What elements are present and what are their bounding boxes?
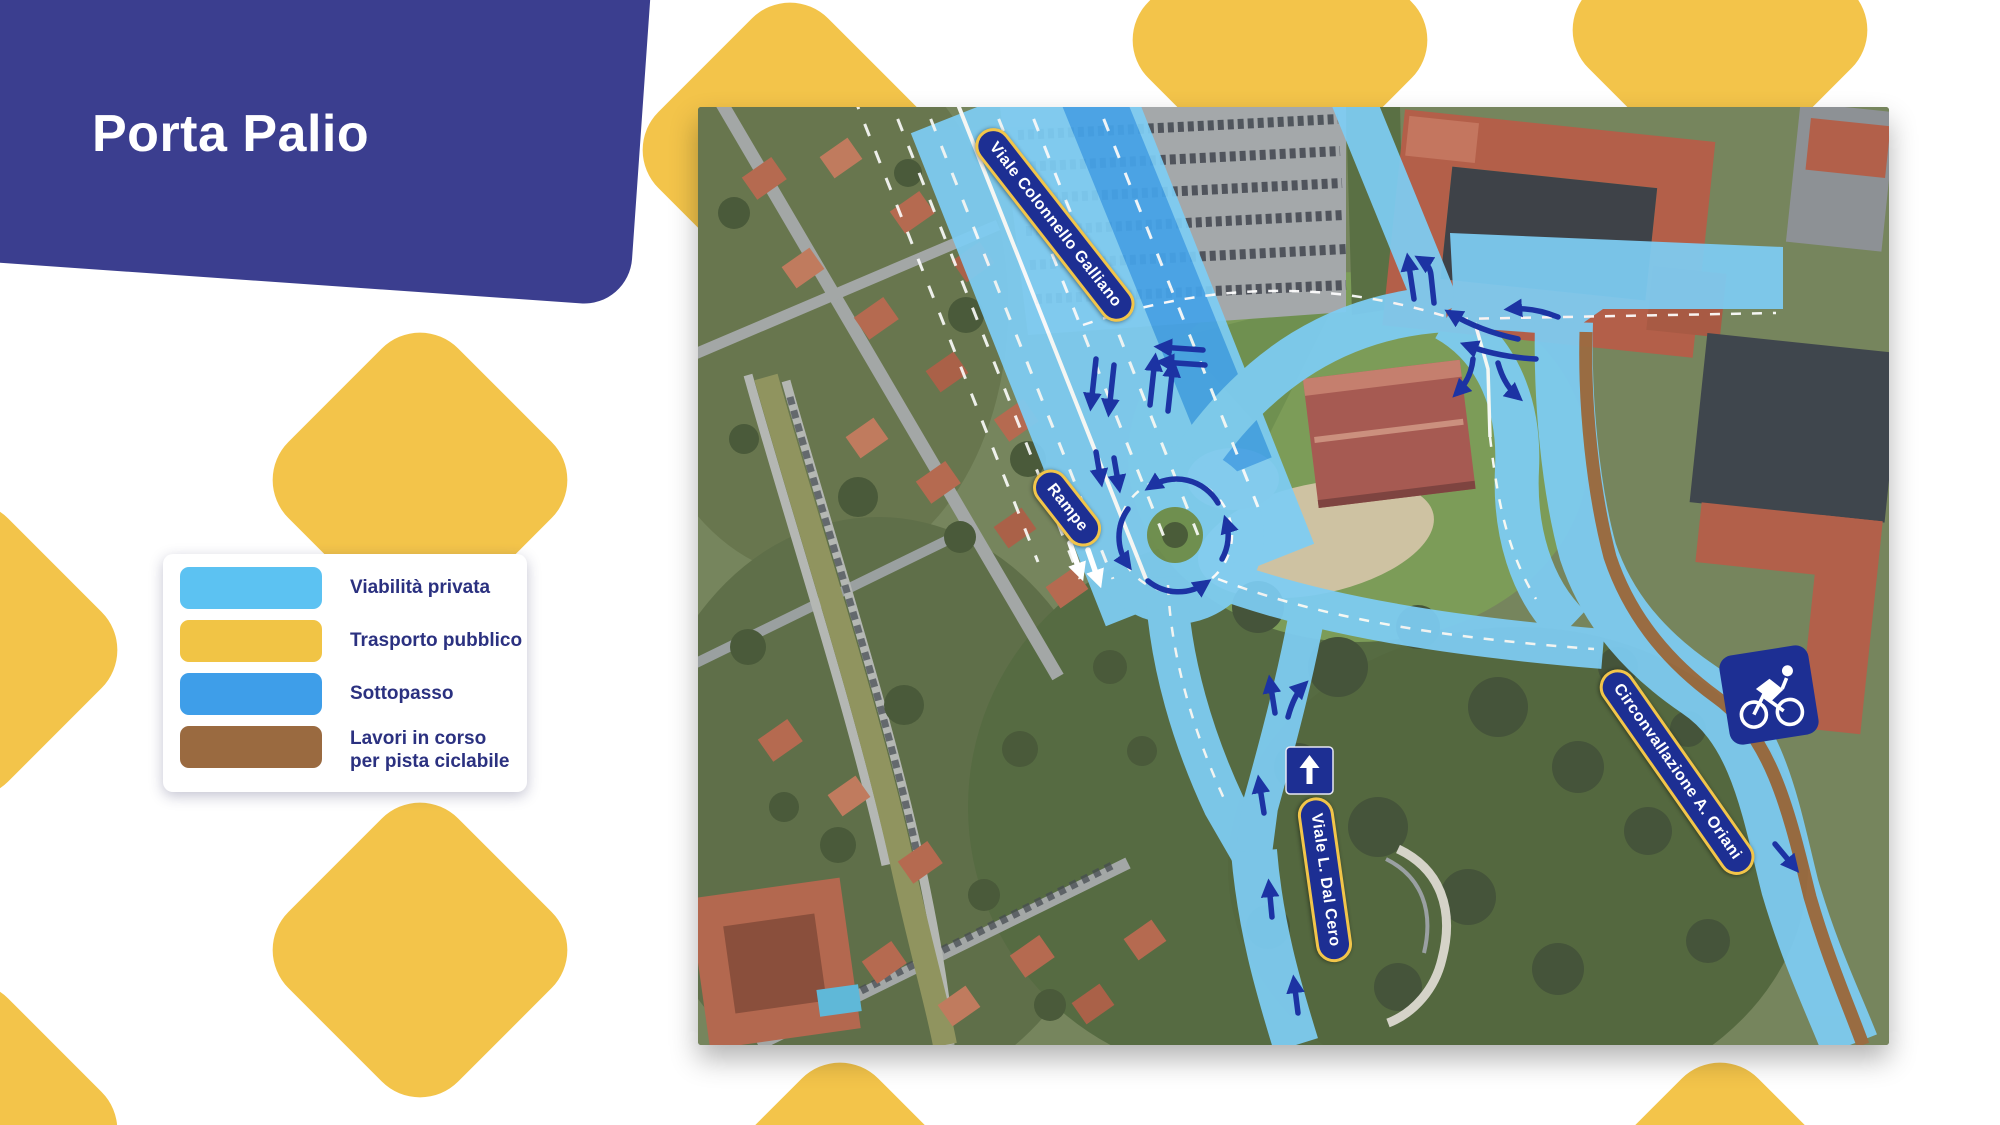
legend-label: Lavori in corso per pista ciclabile [350, 726, 509, 773]
legend-label: Sottopasso [350, 673, 453, 705]
legend-panel: Viabilità privata Trasporto pubblico Sot… [163, 554, 527, 792]
legend-swatch-trasporto-pubblico [180, 620, 322, 662]
bike-crossing-sign [1718, 644, 1821, 747]
legend-swatch-sottopasso [180, 673, 322, 715]
legend-label: Viabilità privata [350, 567, 490, 599]
background-diamond [0, 480, 140, 819]
legend-item-sottopasso: Sottopasso [180, 673, 527, 726]
legend-label: Trasporto pubblico [350, 620, 522, 652]
legend-item-viabilita-privata: Viabilità privata [180, 567, 527, 620]
background-diamond [670, 1040, 1009, 1125]
legend-item-lavori-ciclabile: Lavori in corso per pista ciclabile [180, 726, 527, 779]
background-diamond [0, 960, 140, 1125]
background-diamond [1550, 1040, 1889, 1125]
page-title: Porta Palio [92, 104, 369, 164]
background-diamond [250, 780, 589, 1119]
slide: Porta Palio [0, 0, 2000, 1125]
legend-item-trasporto-pubblico: Trasporto pubblico [180, 620, 527, 673]
background-diamond [1990, 0, 2000, 240]
legend-swatch-lavori-ciclabile [180, 726, 322, 768]
legend-label-line2: per pista ciclabile [350, 751, 509, 772]
legend-label-line1: Lavori in corso [350, 728, 486, 749]
background-diamond [1990, 780, 2000, 1119]
one-way-sign [1286, 747, 1333, 794]
legend-swatch-viabilita-privata [180, 567, 322, 609]
map-canvas [698, 107, 1889, 1045]
satellite-map: Viale Colonnello Galliano Rampe Viale L.… [698, 107, 1889, 1045]
